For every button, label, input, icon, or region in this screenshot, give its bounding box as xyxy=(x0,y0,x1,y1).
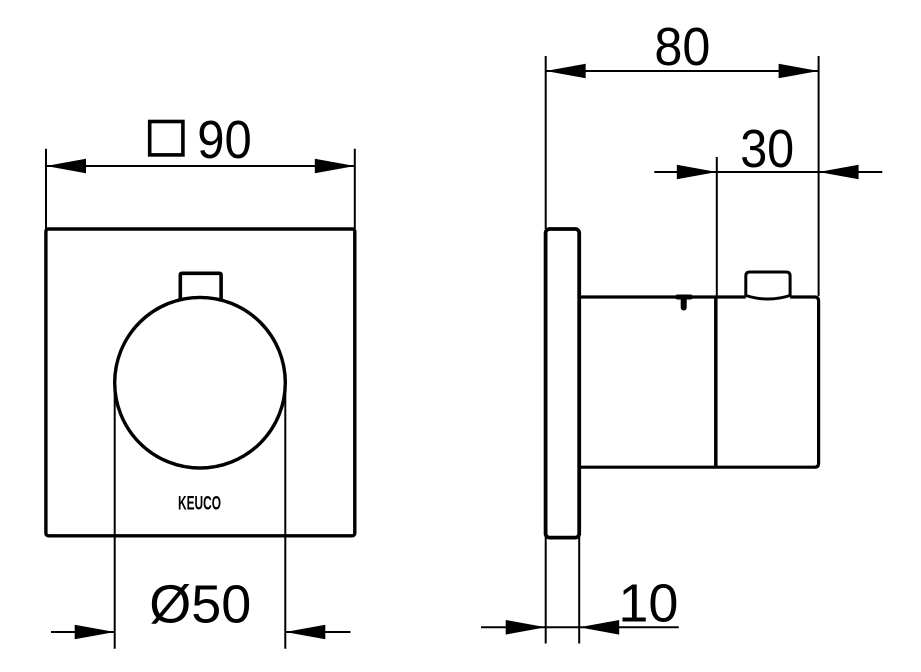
svg-text:90: 90 xyxy=(197,110,252,170)
svg-text:30: 30 xyxy=(740,119,794,179)
svg-text:Ø50: Ø50 xyxy=(149,575,251,635)
svg-text:80: 80 xyxy=(654,17,710,77)
svg-text:KEUCO: KEUCO xyxy=(178,493,221,514)
svg-text:10: 10 xyxy=(618,573,678,633)
